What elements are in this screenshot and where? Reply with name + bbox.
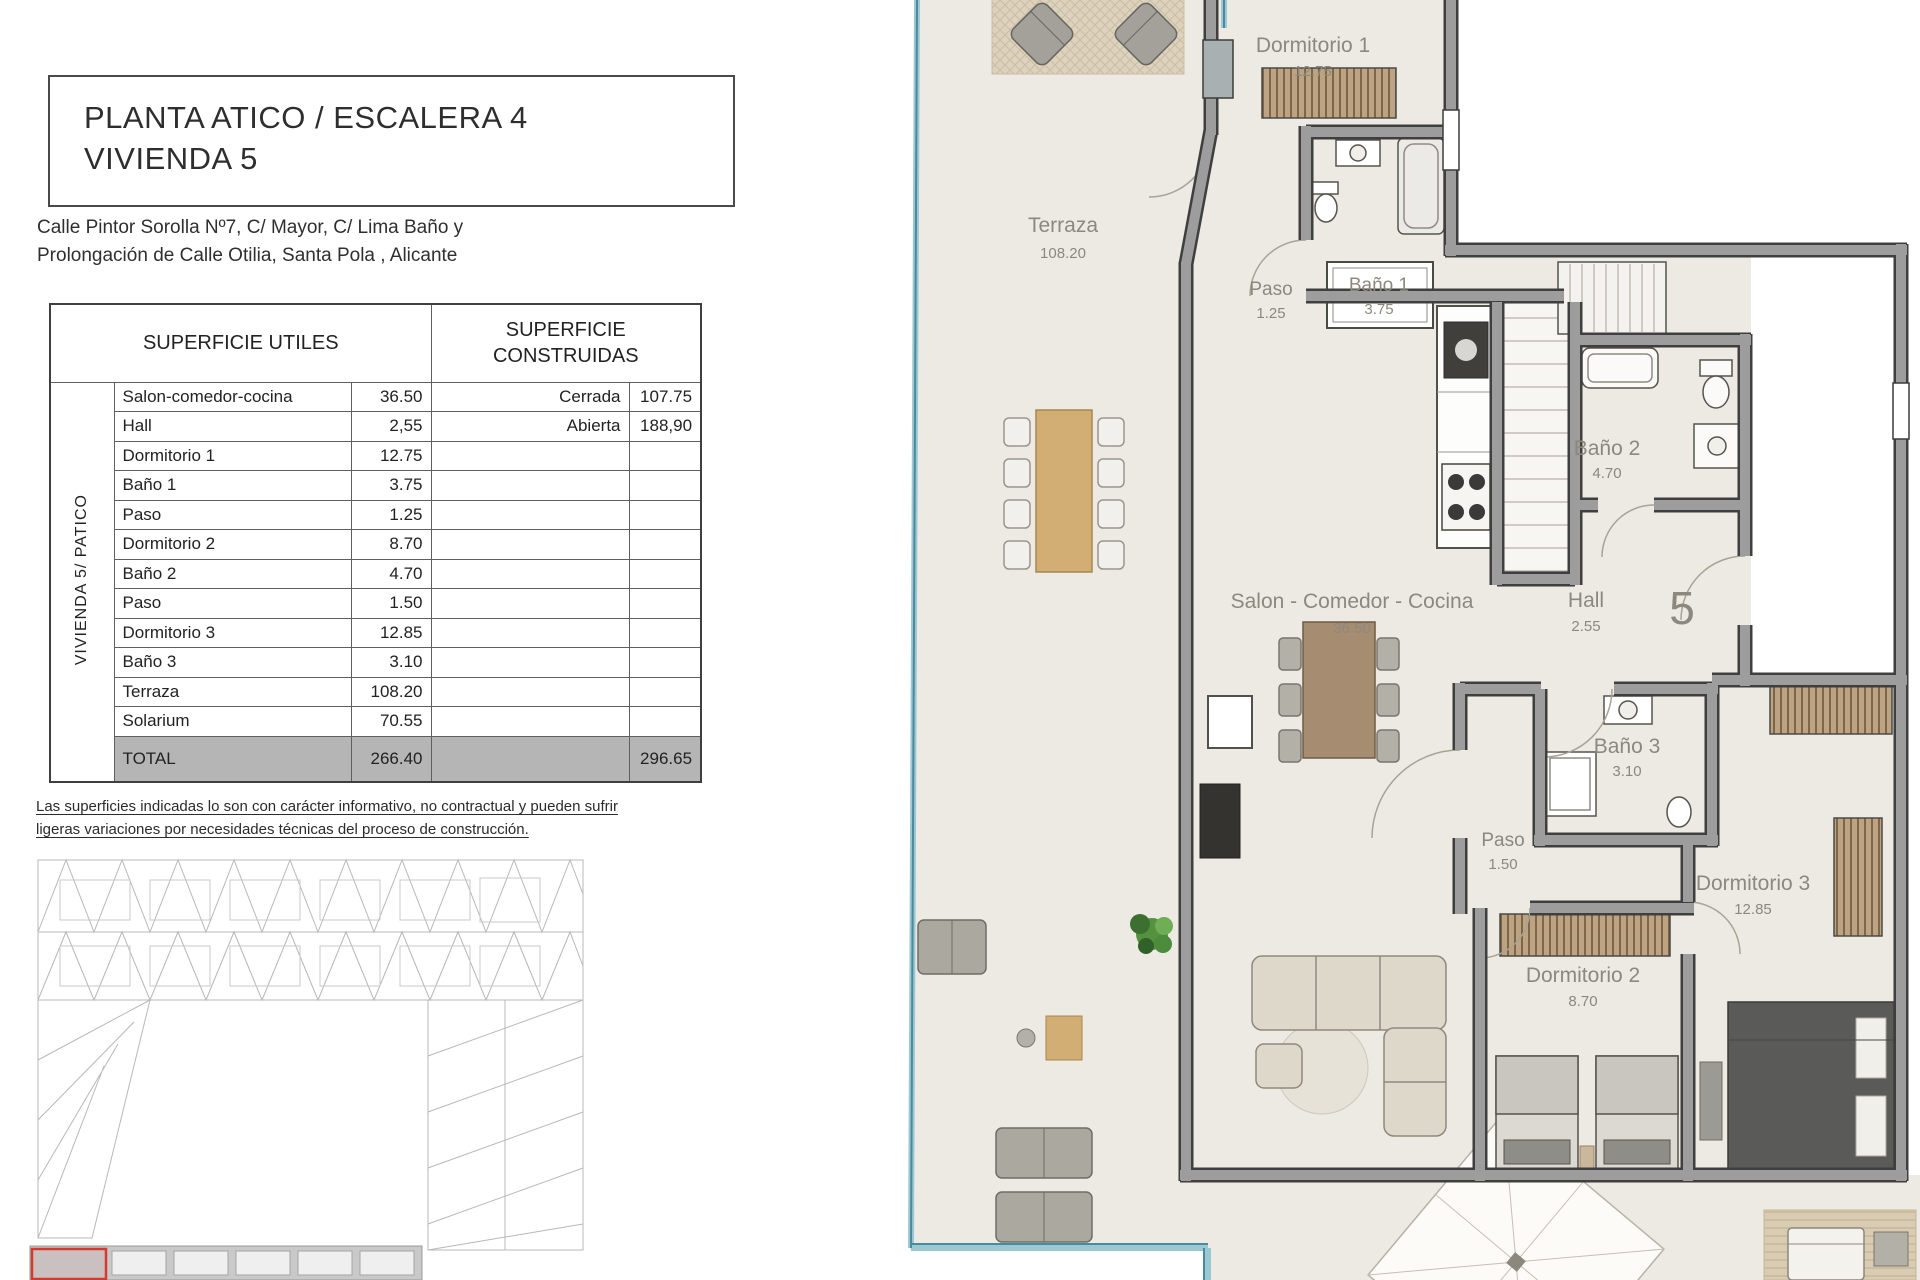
sideboard: [1208, 696, 1252, 748]
room-label-dormitorio2: Dormitorio 2: [1526, 964, 1640, 987]
bathtub: [1398, 138, 1444, 234]
solarium-table: [1874, 1232, 1908, 1266]
room-area-paso1: 1.25: [1256, 305, 1285, 322]
toilet-tank: [1312, 182, 1338, 194]
sun-lounger: [1788, 1228, 1864, 1280]
window: [1203, 40, 1233, 98]
toilet: [1315, 194, 1337, 222]
room-area-bano1: 3.75: [1364, 301, 1393, 318]
room-label-salon: Salon - Comedor - Cocina: [1231, 590, 1474, 613]
tv-unit: [1200, 784, 1240, 858]
room-label-hall: Hall: [1568, 589, 1604, 612]
room-label-bano1: Baño 1: [1349, 275, 1409, 296]
bedroom3-bed: [1700, 1002, 1894, 1172]
terrace-side-table: [1046, 1016, 1082, 1060]
room-area-paso2: 1.50: [1488, 856, 1517, 873]
floorplan-sheet: { "title": {"line1": "PLANTA ATICO / ESC…: [0, 0, 1920, 1280]
room-area-bano2: 4.70: [1592, 465, 1621, 482]
room-label-paso2: Paso: [1481, 830, 1524, 851]
room-area-dormitorio1: 12.75: [1294, 63, 1332, 80]
toilet: [1703, 376, 1729, 408]
kitchen-counter: [1437, 306, 1494, 548]
room-area-terraza: 108.20: [1040, 245, 1086, 262]
room-label-paso1: Paso: [1249, 279, 1292, 300]
terrace-stool: [1017, 1029, 1035, 1047]
room-area-salon: 36.50: [1333, 620, 1371, 637]
stove: [1442, 464, 1490, 530]
toilet-tank: [1700, 360, 1732, 376]
room-label-terraza: Terraza: [1028, 214, 1098, 237]
room-area-bano3: 3.10: [1612, 763, 1641, 780]
room-area-dormitorio2: 8.70: [1568, 993, 1597, 1010]
window: [1443, 110, 1459, 170]
floorplan: Dormitorio 1 12.75 Terraza 108.20 Paso 1…: [0, 0, 1920, 1280]
common-landing: [1751, 256, 1895, 674]
room-label-dormitorio1: Dormitorio 1: [1256, 34, 1370, 57]
toilet: [1667, 797, 1691, 827]
room-label-dormitorio3: Dormitorio 3: [1696, 872, 1810, 895]
salon-dining-set: [1279, 622, 1399, 762]
unit-number: 5: [1669, 582, 1695, 634]
window: [1893, 383, 1909, 439]
shower: [1544, 752, 1596, 816]
room-area-hall: 2.55: [1571, 618, 1600, 635]
room-label-bano3: Baño 3: [1594, 735, 1661, 758]
room-label-bano2: Baño 2: [1574, 437, 1641, 460]
room-area-dormitorio3: 12.85: [1734, 901, 1772, 918]
